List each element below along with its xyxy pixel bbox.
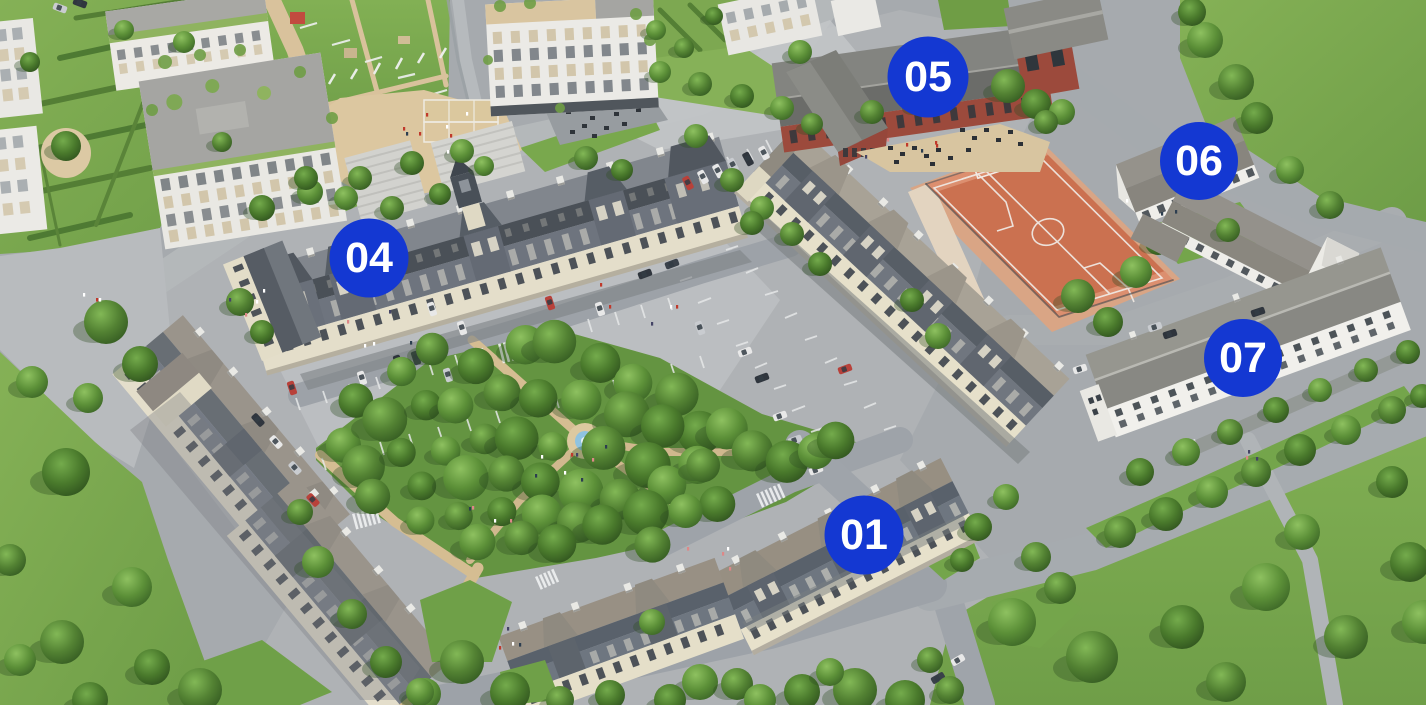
svg-text:06: 06 xyxy=(1175,137,1223,185)
svg-text:04: 04 xyxy=(345,234,393,282)
svg-text:01: 01 xyxy=(840,511,888,559)
svg-text:05: 05 xyxy=(904,53,952,101)
svg-text:07: 07 xyxy=(1219,334,1267,382)
